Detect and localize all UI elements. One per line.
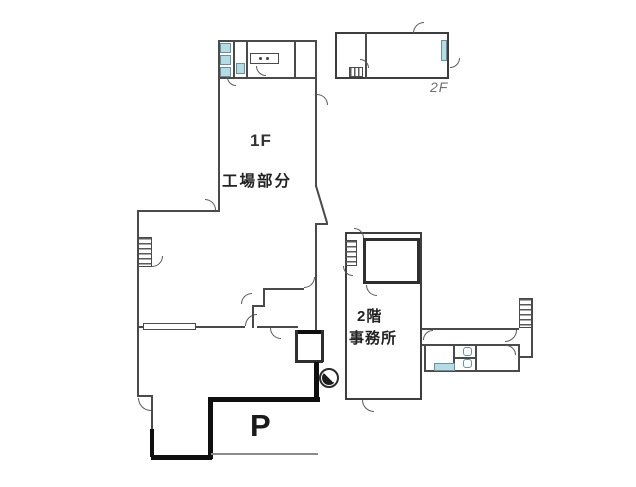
door-arc-icon bbox=[362, 400, 374, 412]
floor-plan: 2F 1F 工場部分 2階 事務所 P bbox=[0, 0, 636, 487]
door-arc-icon bbox=[413, 22, 424, 33]
office-name-label: 事務所 bbox=[349, 327, 397, 348]
office-inner-room bbox=[363, 238, 420, 284]
wall bbox=[424, 344, 426, 372]
wall bbox=[519, 356, 533, 358]
door-arc-icon bbox=[205, 199, 216, 210]
door-arc-icon bbox=[138, 398, 151, 411]
wall bbox=[263, 288, 265, 307]
wall-hatched bbox=[295, 330, 324, 334]
sink-icon bbox=[236, 63, 245, 74]
site-boundary bbox=[208, 397, 320, 402]
factory-name-label: 工場部分 bbox=[222, 169, 292, 191]
door-arc-icon bbox=[317, 94, 328, 105]
site-boundary bbox=[208, 397, 213, 459]
wall bbox=[295, 330, 298, 362]
sink-counter-icon bbox=[434, 363, 455, 371]
wall bbox=[475, 344, 477, 372]
wall bbox=[294, 40, 296, 78]
utility-pole-fill bbox=[322, 371, 336, 385]
sink-dot-icon bbox=[266, 57, 269, 60]
toilet-icon bbox=[220, 43, 231, 53]
door-arc-icon bbox=[304, 277, 315, 288]
wall bbox=[315, 223, 317, 333]
site-boundary bbox=[314, 362, 319, 400]
wall bbox=[518, 344, 520, 372]
stairs-icon bbox=[349, 67, 363, 77]
wall bbox=[137, 210, 220, 212]
utility-pole-icon bbox=[319, 368, 339, 388]
parking-label: P bbox=[250, 408, 271, 444]
door-arc-icon bbox=[423, 330, 433, 340]
sink-dot-icon bbox=[259, 57, 262, 60]
site-boundary bbox=[150, 429, 154, 457]
sink-counter-icon bbox=[250, 53, 279, 64]
door-arc-icon bbox=[256, 66, 266, 76]
door-arc-icon bbox=[241, 293, 252, 304]
wall bbox=[321, 330, 324, 362]
door-arc-icon bbox=[245, 314, 257, 326]
wall bbox=[531, 298, 533, 358]
annex-floor-label: 2F bbox=[430, 79, 448, 95]
office-floor-label: 2階 bbox=[357, 305, 382, 326]
toilet-icon bbox=[463, 347, 472, 356]
site-boundary bbox=[151, 455, 212, 460]
door-arc-icon bbox=[506, 345, 516, 355]
wall bbox=[263, 288, 304, 290]
wall bbox=[365, 32, 367, 79]
stairs-icon bbox=[138, 237, 152, 267]
wall bbox=[218, 40, 220, 212]
factory-floor-label: 1F bbox=[250, 131, 272, 151]
wall bbox=[233, 40, 235, 78]
wall bbox=[315, 40, 317, 187]
door-arc-icon bbox=[227, 77, 236, 86]
stairs-icon bbox=[345, 240, 357, 266]
wall bbox=[295, 360, 323, 363]
door-arc-icon bbox=[354, 228, 364, 238]
door-arc-icon bbox=[505, 330, 517, 342]
toilet-icon bbox=[220, 55, 231, 65]
window-icon bbox=[143, 323, 196, 330]
wall bbox=[246, 40, 248, 78]
toilet-icon bbox=[220, 67, 231, 77]
door-arc-icon bbox=[152, 256, 163, 267]
wall bbox=[252, 305, 254, 328]
toilet-icon bbox=[463, 359, 472, 368]
ground-line bbox=[211, 453, 318, 455]
door-arc-icon bbox=[270, 328, 281, 339]
wall bbox=[315, 185, 328, 223]
wall bbox=[151, 395, 153, 431]
door-arc-icon bbox=[450, 58, 460, 68]
bath-fixture-icon bbox=[441, 40, 447, 61]
